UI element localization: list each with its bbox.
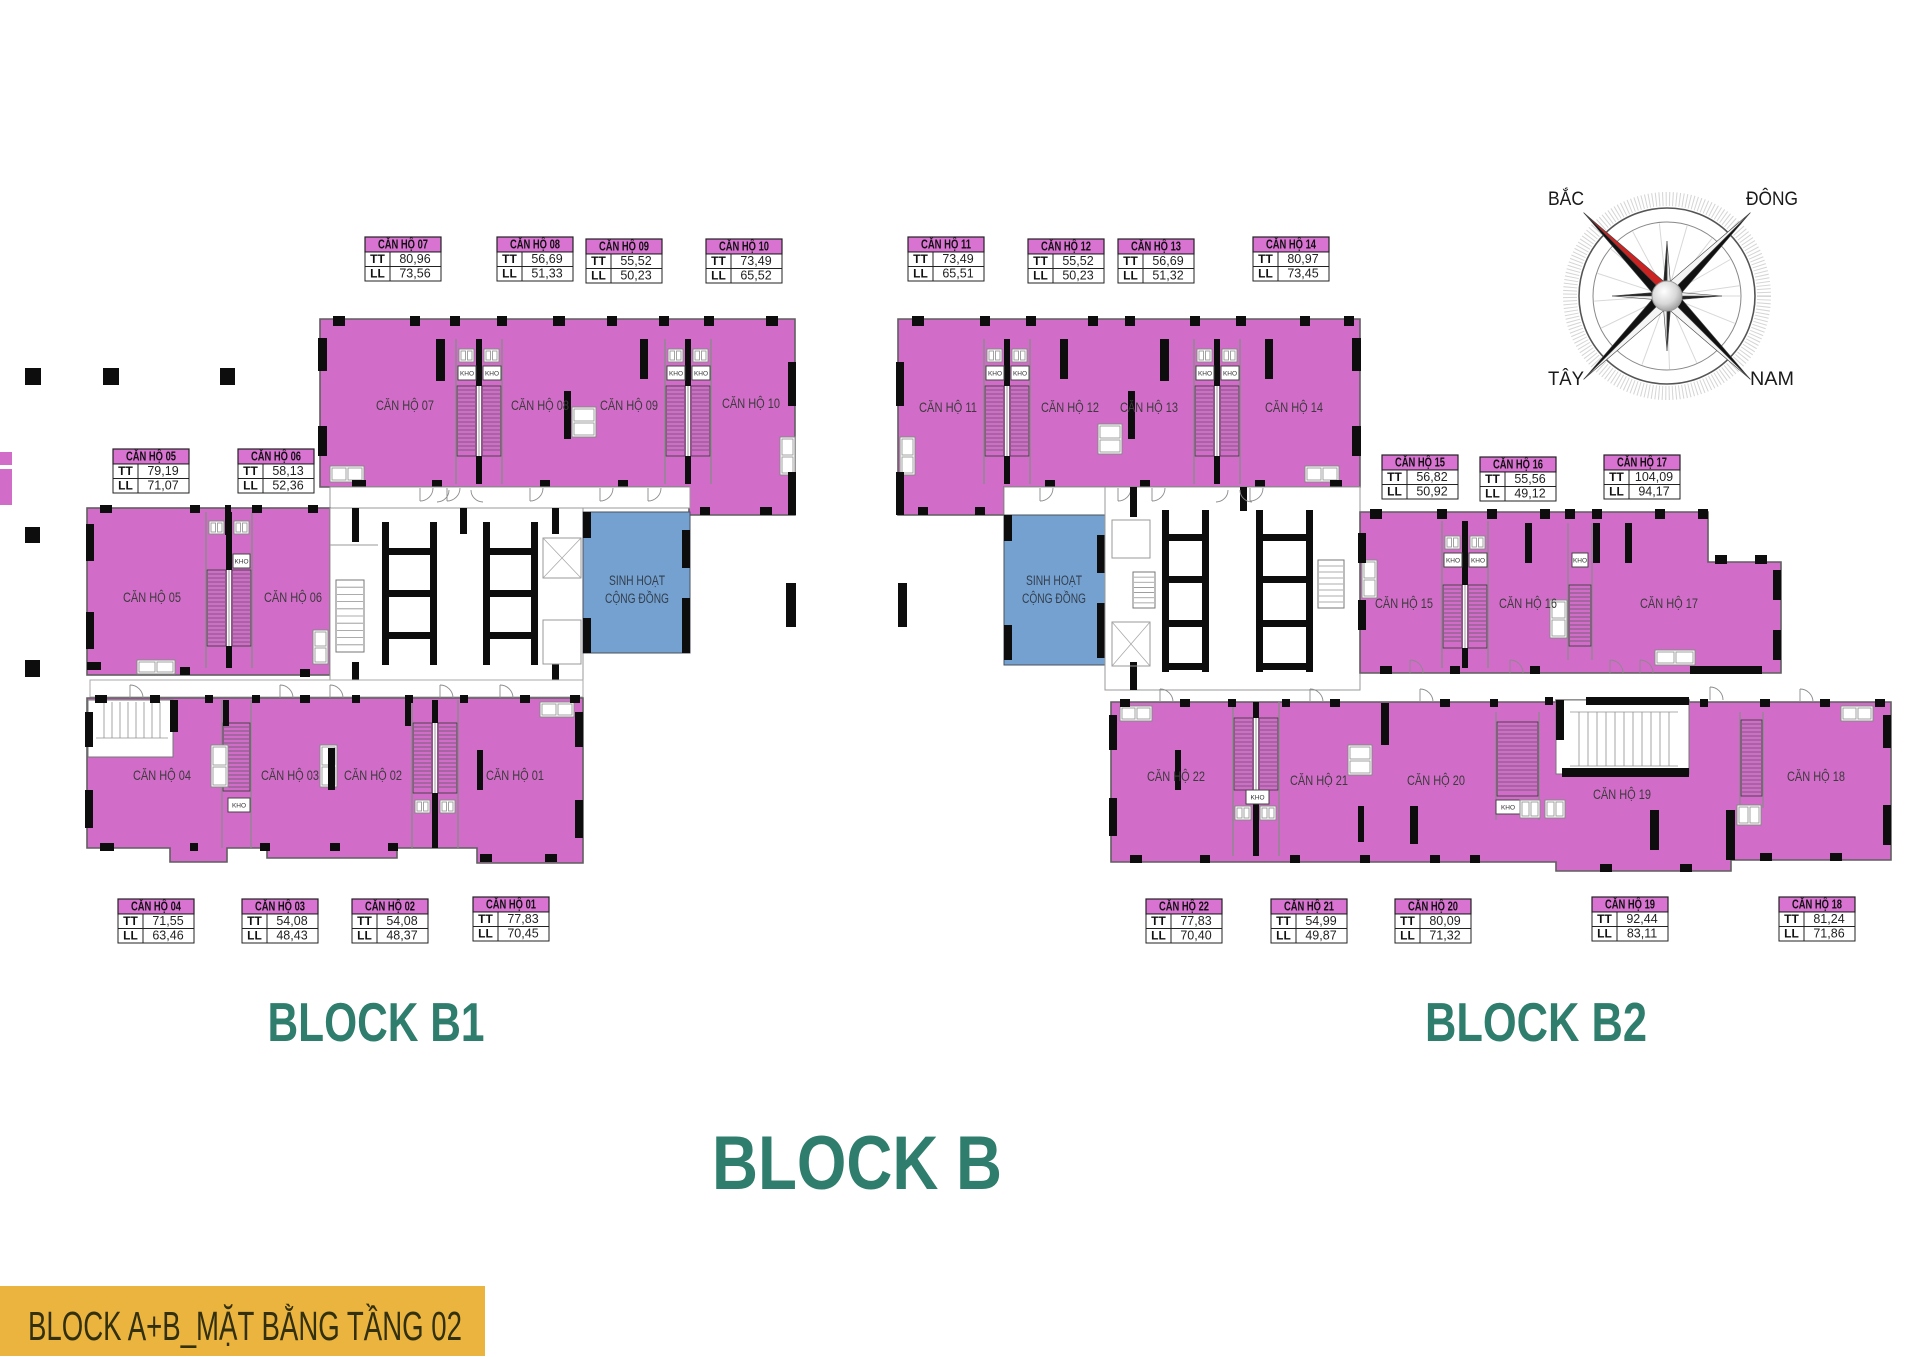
svg-text:SINH HOẠT: SINH HOẠT bbox=[609, 573, 665, 588]
svg-text:49,12: 49,12 bbox=[1514, 487, 1545, 501]
svg-text:TT: TT bbox=[478, 912, 493, 926]
svg-text:71,86: 71,86 bbox=[1813, 927, 1844, 941]
svg-text:LL: LL bbox=[370, 267, 385, 281]
svg-text:TT: TT bbox=[502, 252, 517, 266]
svg-text:CĂN HỘ 10: CĂN HỘ 10 bbox=[719, 239, 769, 254]
svg-text:CĂN HỘ 05: CĂN HỘ 05 bbox=[126, 449, 176, 464]
svg-text:58,13: 58,13 bbox=[272, 464, 303, 478]
svg-text:KHO: KHO bbox=[694, 371, 708, 378]
svg-text:LL: LL bbox=[1258, 267, 1273, 281]
svg-text:LL: LL bbox=[913, 267, 928, 281]
svg-text:CĂN HỘ 18: CĂN HỘ 18 bbox=[1787, 768, 1845, 784]
svg-text:TT: TT bbox=[247, 914, 262, 928]
svg-text:56,69: 56,69 bbox=[531, 252, 562, 266]
svg-text:BẮC: BẮC bbox=[1548, 188, 1584, 210]
svg-text:CĂN HỘ 09: CĂN HỘ 09 bbox=[600, 397, 658, 413]
svg-text:LL: LL bbox=[1387, 485, 1402, 499]
svg-text:CĂN HỘ 13: CĂN HỘ 13 bbox=[1120, 399, 1178, 415]
svg-text:KHO: KHO bbox=[1573, 558, 1587, 565]
svg-text:TT: TT bbox=[357, 914, 372, 928]
svg-text:CĂN HỘ 11: CĂN HỘ 11 bbox=[919, 399, 977, 415]
svg-text:SINH HOẠT: SINH HOẠT bbox=[1026, 573, 1082, 588]
svg-text:94,17: 94,17 bbox=[1638, 485, 1669, 499]
svg-text:CĂN HỘ 10: CĂN HỘ 10 bbox=[722, 395, 780, 411]
svg-text:TT: TT bbox=[913, 252, 928, 266]
svg-text:50,23: 50,23 bbox=[620, 269, 651, 283]
svg-text:KHO: KHO bbox=[1446, 558, 1460, 565]
svg-text:CĂN HỘ 03: CĂN HỘ 03 bbox=[261, 767, 319, 783]
svg-text:CỘNG ĐỒNG: CỘNG ĐỒNG bbox=[1022, 591, 1086, 606]
svg-text:TT: TT bbox=[243, 464, 258, 478]
svg-text:CĂN HỘ 14: CĂN HỘ 14 bbox=[1266, 237, 1316, 252]
svg-text:63,46: 63,46 bbox=[152, 929, 183, 943]
svg-text:LL: LL bbox=[118, 479, 133, 493]
svg-text:80,97: 80,97 bbox=[1287, 252, 1318, 266]
svg-text:TT: TT bbox=[1276, 914, 1291, 928]
svg-text:55,56: 55,56 bbox=[1514, 472, 1545, 486]
svg-text:CĂN HỘ 08: CĂN HỘ 08 bbox=[510, 237, 560, 252]
svg-text:73,49: 73,49 bbox=[740, 254, 771, 268]
svg-text:54,99: 54,99 bbox=[1305, 914, 1336, 928]
svg-text:LL: LL bbox=[478, 927, 493, 941]
svg-text:TT: TT bbox=[1387, 470, 1402, 484]
svg-text:TT: TT bbox=[370, 252, 385, 266]
svg-text:CĂN HỘ 13: CĂN HỘ 13 bbox=[1131, 239, 1181, 254]
svg-text:51,32: 51,32 bbox=[1152, 269, 1183, 283]
svg-text:70,40: 70,40 bbox=[1180, 929, 1211, 943]
svg-text:BLOCK B2: BLOCK B2 bbox=[1425, 991, 1647, 1053]
svg-text:BLOCK B: BLOCK B bbox=[712, 1121, 1002, 1206]
svg-text:KHO: KHO bbox=[1013, 371, 1027, 378]
svg-text:73,49: 73,49 bbox=[942, 252, 973, 266]
svg-text:BLOCK B1: BLOCK B1 bbox=[268, 991, 485, 1053]
svg-text:LL: LL bbox=[1597, 927, 1612, 941]
svg-text:TT: TT bbox=[1597, 912, 1612, 926]
svg-text:CĂN HỘ 21: CĂN HỘ 21 bbox=[1290, 772, 1348, 788]
svg-text:CĂN HỘ 06: CĂN HỘ 06 bbox=[264, 589, 322, 605]
svg-text:50,23: 50,23 bbox=[1062, 269, 1093, 283]
svg-text:LL: LL bbox=[1123, 269, 1138, 283]
svg-text:KHO: KHO bbox=[669, 371, 683, 378]
svg-text:73,56: 73,56 bbox=[399, 267, 430, 281]
svg-text:CỘNG ĐỒNG: CỘNG ĐỒNG bbox=[605, 591, 669, 606]
svg-text:CĂN HỘ 21: CĂN HỘ 21 bbox=[1284, 899, 1334, 914]
svg-text:LL: LL bbox=[243, 479, 258, 493]
svg-text:71,32: 71,32 bbox=[1429, 929, 1460, 943]
svg-text:CĂN HỘ 07: CĂN HỘ 07 bbox=[378, 237, 428, 252]
svg-text:LL: LL bbox=[502, 267, 517, 281]
svg-text:CĂN HỘ 19: CĂN HỘ 19 bbox=[1605, 897, 1655, 912]
svg-text:52,36: 52,36 bbox=[272, 479, 303, 493]
svg-text:TÂY: TÂY bbox=[1548, 368, 1584, 390]
svg-text:TT: TT bbox=[118, 464, 133, 478]
svg-text:77,83: 77,83 bbox=[1180, 914, 1211, 928]
svg-text:KHO: KHO bbox=[1471, 558, 1485, 565]
svg-text:KHO: KHO bbox=[232, 803, 246, 810]
svg-text:CĂN HỘ 15: CĂN HỘ 15 bbox=[1375, 595, 1433, 611]
svg-text:KHO: KHO bbox=[460, 371, 474, 378]
svg-text:CĂN HỘ 09: CĂN HỘ 09 bbox=[599, 239, 649, 254]
svg-text:CĂN HỘ 06: CĂN HỘ 06 bbox=[251, 449, 301, 464]
svg-text:71,07: 71,07 bbox=[147, 479, 178, 493]
svg-text:KHO: KHO bbox=[988, 371, 1002, 378]
svg-text:65,52: 65,52 bbox=[740, 269, 771, 283]
svg-text:LL: LL bbox=[1151, 929, 1166, 943]
svg-text:LL: LL bbox=[357, 929, 372, 943]
svg-text:71,55: 71,55 bbox=[152, 914, 183, 928]
svg-text:NAM: NAM bbox=[1750, 369, 1794, 390]
svg-text:LL: LL bbox=[591, 269, 606, 283]
svg-text:CĂN HỘ 02: CĂN HỘ 02 bbox=[365, 899, 415, 914]
svg-text:CĂN HỘ 01: CĂN HỘ 01 bbox=[486, 767, 544, 783]
svg-text:TT: TT bbox=[1485, 472, 1500, 486]
svg-text:56,82: 56,82 bbox=[1416, 470, 1447, 484]
svg-text:LL: LL bbox=[123, 929, 138, 943]
svg-text:KHO: KHO bbox=[1198, 371, 1212, 378]
svg-text:LL: LL bbox=[1400, 929, 1415, 943]
svg-text:73,45: 73,45 bbox=[1287, 267, 1318, 281]
svg-text:TT: TT bbox=[1033, 254, 1048, 268]
svg-text:77,83: 77,83 bbox=[507, 912, 538, 926]
svg-text:48,43: 48,43 bbox=[276, 929, 307, 943]
svg-text:KHO: KHO bbox=[485, 371, 499, 378]
svg-text:55,52: 55,52 bbox=[620, 254, 651, 268]
svg-text:BLOCK A+B_MẶT BẰNG TẦNG 02: BLOCK A+B_MẶT BẰNG TẦNG 02 bbox=[28, 1303, 462, 1349]
svg-text:TT: TT bbox=[1123, 254, 1138, 268]
svg-text:TT: TT bbox=[1609, 470, 1624, 484]
svg-text:LL: LL bbox=[1609, 485, 1624, 499]
svg-text:CĂN HỘ 04: CĂN HỘ 04 bbox=[131, 899, 181, 914]
svg-text:80,96: 80,96 bbox=[399, 252, 430, 266]
svg-text:55,52: 55,52 bbox=[1062, 254, 1093, 268]
svg-text:CĂN HỘ 17: CĂN HỘ 17 bbox=[1617, 455, 1667, 470]
svg-text:54,08: 54,08 bbox=[276, 914, 307, 928]
svg-text:81,24: 81,24 bbox=[1813, 912, 1844, 926]
svg-text:TT: TT bbox=[1151, 914, 1166, 928]
svg-text:TT: TT bbox=[1784, 912, 1799, 926]
svg-text:CĂN HỘ 15: CĂN HỘ 15 bbox=[1395, 455, 1445, 470]
svg-text:CĂN HỘ 01: CĂN HỘ 01 bbox=[486, 897, 536, 912]
svg-text:65,51: 65,51 bbox=[942, 267, 973, 281]
svg-text:51,33: 51,33 bbox=[531, 267, 562, 281]
svg-text:CĂN HỘ 07: CĂN HỘ 07 bbox=[376, 397, 434, 413]
svg-text:54,08: 54,08 bbox=[386, 914, 417, 928]
svg-text:CĂN HỘ 20: CĂN HỘ 20 bbox=[1407, 772, 1465, 788]
svg-text:TT: TT bbox=[1258, 252, 1273, 266]
svg-text:LL: LL bbox=[247, 929, 262, 943]
svg-text:TT: TT bbox=[591, 254, 606, 268]
svg-text:92,44: 92,44 bbox=[1626, 912, 1657, 926]
svg-text:TT: TT bbox=[123, 914, 138, 928]
svg-text:CĂN HỘ 18: CĂN HỘ 18 bbox=[1792, 897, 1842, 912]
svg-text:CĂN HỘ 12: CĂN HỘ 12 bbox=[1041, 399, 1099, 415]
svg-text:CĂN HỘ 12: CĂN HỘ 12 bbox=[1041, 239, 1091, 254]
svg-text:48,37: 48,37 bbox=[386, 929, 417, 943]
svg-text:CĂN HỘ 17: CĂN HỘ 17 bbox=[1640, 595, 1698, 611]
svg-text:CĂN HỘ 19: CĂN HỘ 19 bbox=[1593, 786, 1651, 802]
svg-text:TT: TT bbox=[1400, 914, 1415, 928]
svg-text:KHO: KHO bbox=[1501, 805, 1515, 812]
svg-text:80,09: 80,09 bbox=[1429, 914, 1460, 928]
svg-text:CĂN HỘ 22: CĂN HỘ 22 bbox=[1159, 899, 1209, 914]
svg-text:CĂN HỘ 11: CĂN HỘ 11 bbox=[921, 237, 971, 252]
svg-text:104,09: 104,09 bbox=[1635, 470, 1673, 484]
svg-text:KHO: KHO bbox=[1223, 371, 1237, 378]
svg-text:79,19: 79,19 bbox=[147, 464, 178, 478]
svg-text:49,87: 49,87 bbox=[1305, 929, 1336, 943]
svg-text:CĂN HỘ 16: CĂN HỘ 16 bbox=[1499, 595, 1557, 611]
svg-text:TT: TT bbox=[711, 254, 726, 268]
svg-text:CĂN HỘ 14: CĂN HỘ 14 bbox=[1265, 399, 1323, 415]
svg-text:CĂN HỘ 20: CĂN HỘ 20 bbox=[1408, 899, 1458, 914]
svg-text:KHO: KHO bbox=[1250, 795, 1264, 802]
svg-text:CĂN HỘ 05: CĂN HỘ 05 bbox=[123, 589, 181, 605]
svg-text:KHO: KHO bbox=[234, 559, 248, 566]
svg-text:CĂN HỘ 16: CĂN HỘ 16 bbox=[1493, 457, 1543, 472]
svg-text:CĂN HỘ 02: CĂN HỘ 02 bbox=[344, 767, 402, 783]
svg-text:LL: LL bbox=[1276, 929, 1291, 943]
svg-text:50,92: 50,92 bbox=[1416, 485, 1447, 499]
svg-text:LL: LL bbox=[1485, 487, 1500, 501]
svg-text:CĂN HỘ 08: CĂN HỘ 08 bbox=[511, 397, 569, 413]
svg-text:56,69: 56,69 bbox=[1152, 254, 1183, 268]
svg-text:LL: LL bbox=[1784, 927, 1799, 941]
svg-text:CĂN HỘ 22: CĂN HỘ 22 bbox=[1147, 768, 1205, 784]
svg-text:ĐÔNG: ĐÔNG bbox=[1746, 188, 1798, 210]
svg-text:CĂN HỘ 03: CĂN HỘ 03 bbox=[255, 899, 305, 914]
svg-text:CĂN HỘ 04: CĂN HỘ 04 bbox=[133, 767, 191, 783]
svg-text:LL: LL bbox=[711, 269, 726, 283]
svg-text:LL: LL bbox=[1033, 269, 1048, 283]
svg-text:70,45: 70,45 bbox=[507, 927, 538, 941]
svg-text:83,11: 83,11 bbox=[1627, 927, 1657, 941]
